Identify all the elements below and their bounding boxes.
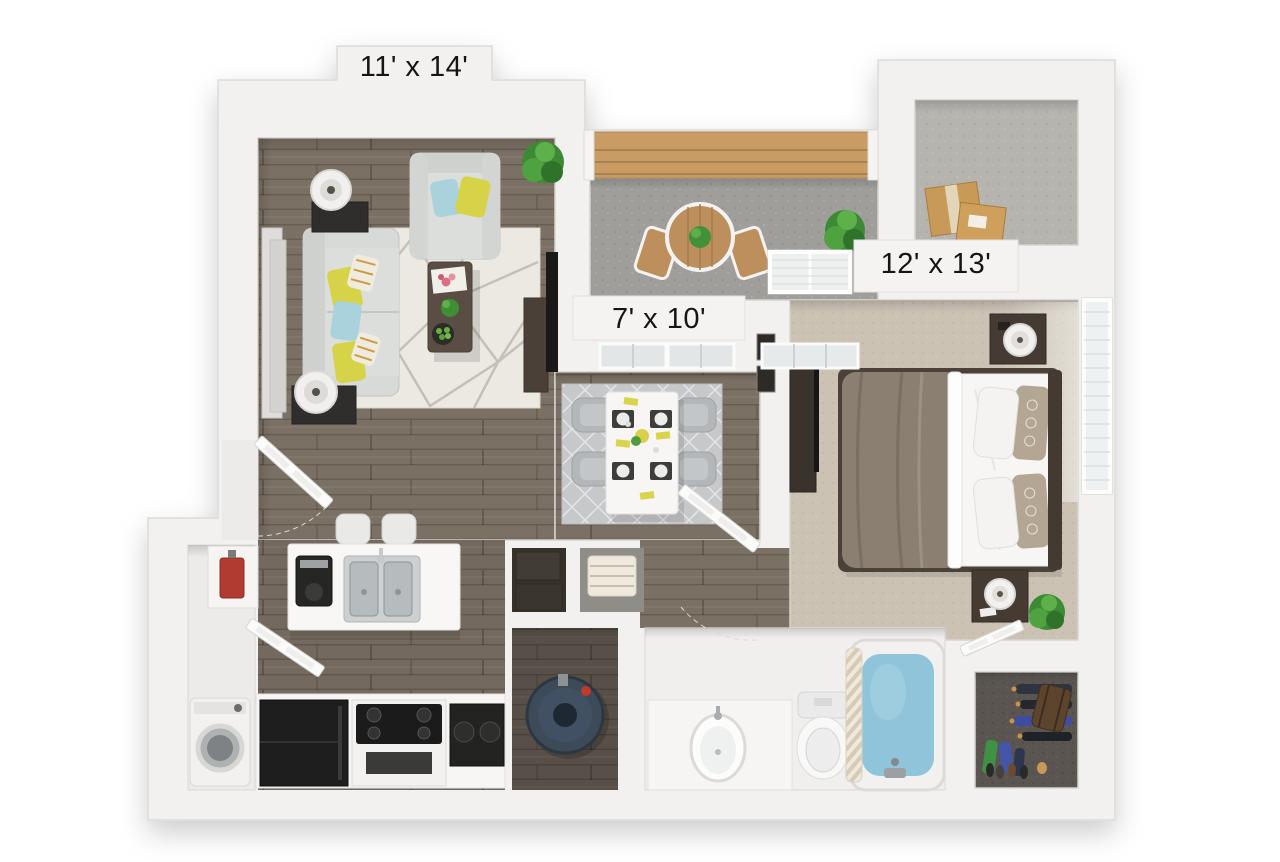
headboard bbox=[1048, 370, 1062, 570]
armchair bbox=[410, 153, 500, 259]
coffee-maker bbox=[296, 556, 332, 606]
coffee-table bbox=[428, 262, 480, 362]
bedroom-doorway-floor bbox=[755, 548, 790, 640]
table-plant bbox=[689, 226, 711, 248]
yellow-napkin bbox=[616, 439, 631, 447]
slippers bbox=[1037, 762, 1047, 774]
bedroom-top-window bbox=[768, 250, 852, 294]
wall-art-frame bbox=[757, 366, 775, 392]
balcony-dimensions: 7' x 10' bbox=[612, 303, 706, 335]
floor-plan: 11' x 14' 7' x 10' 12' x 13' bbox=[0, 0, 1280, 862]
fruit-bowl bbox=[432, 323, 454, 345]
bistro-table bbox=[667, 204, 733, 270]
stacked-laundry-unit bbox=[516, 552, 560, 580]
range-stove bbox=[352, 700, 446, 786]
wall-glazing bbox=[600, 344, 858, 368]
tub-faucet bbox=[884, 768, 906, 778]
balcony-railing bbox=[584, 130, 878, 180]
bedroom-side-window bbox=[1082, 298, 1112, 494]
bar-stool bbox=[336, 514, 370, 544]
bed bbox=[838, 368, 1062, 577]
blue-pillow bbox=[329, 300, 362, 342]
fire-riser bbox=[220, 558, 244, 598]
bedroom-dimensions: 12' x 13' bbox=[881, 248, 992, 280]
refrigerator bbox=[260, 700, 348, 786]
microwave-oven bbox=[450, 704, 504, 766]
shower-curtain bbox=[846, 648, 862, 782]
railing-post bbox=[868, 130, 878, 180]
kitchen-island bbox=[288, 544, 460, 630]
bathtub bbox=[850, 640, 944, 790]
pillow bbox=[972, 386, 1019, 460]
bedroom-corner-plant bbox=[1029, 594, 1065, 630]
media-console bbox=[524, 298, 548, 392]
yellow-napkin bbox=[656, 431, 671, 439]
entry-door-opening bbox=[222, 440, 258, 540]
stacked-laundry-unit bbox=[516, 584, 562, 610]
nightstand-bottom bbox=[972, 570, 1028, 622]
tv bbox=[546, 252, 558, 372]
pillow bbox=[972, 476, 1019, 550]
washer bbox=[190, 698, 250, 786]
leaning-art-canvas bbox=[270, 240, 286, 412]
living-room-dimensions: 11' x 14' bbox=[360, 51, 469, 83]
toilet bbox=[797, 692, 849, 779]
dresser bbox=[790, 352, 816, 492]
towel-stack bbox=[588, 556, 636, 596]
dresser-tv bbox=[814, 368, 819, 472]
heater-valve bbox=[581, 686, 591, 696]
bar-stool bbox=[382, 514, 416, 544]
corner-plant bbox=[522, 141, 564, 183]
railing-post bbox=[584, 130, 594, 180]
kitchen-sink bbox=[344, 548, 420, 622]
hallway-floor bbox=[640, 540, 755, 628]
vanity bbox=[648, 700, 792, 790]
nightstand-top bbox=[990, 314, 1046, 364]
dining-window bbox=[762, 344, 858, 368]
oven-window bbox=[366, 752, 432, 774]
dining-table bbox=[606, 392, 684, 522]
